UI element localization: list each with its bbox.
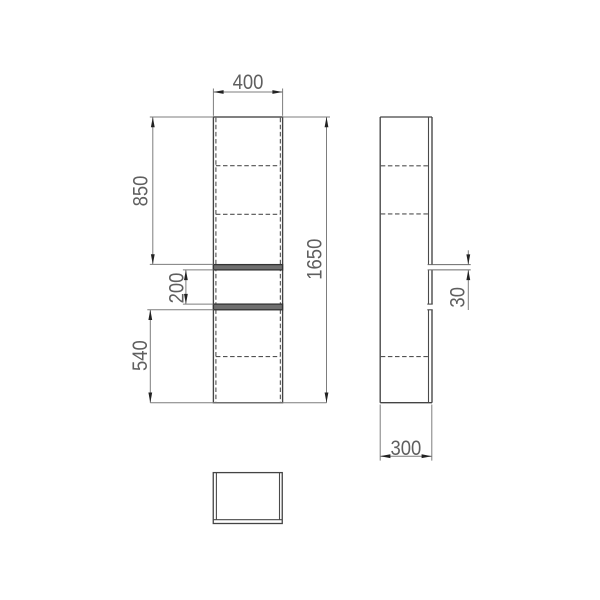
svg-text:1650: 1650 (304, 239, 327, 280)
svg-text:540: 540 (129, 340, 152, 371)
svg-text:200: 200 (165, 273, 188, 304)
svg-text:400: 400 (233, 71, 264, 94)
svg-text:300: 300 (390, 437, 421, 460)
svg-text:30: 30 (447, 287, 470, 308)
svg-text:850: 850 (130, 176, 153, 207)
